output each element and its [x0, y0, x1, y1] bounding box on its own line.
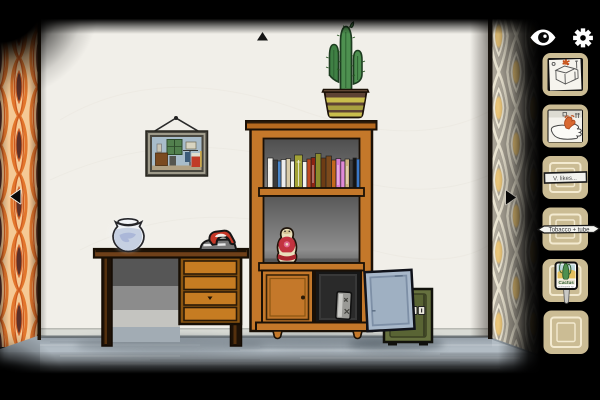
- svg-text:Cactus: Cactus: [559, 280, 575, 285]
- svg-text:Tobacco + tube: Tobacco + tube: [549, 228, 591, 234]
- svg-text:V. likes...: V. likes...: [553, 176, 577, 183]
- svg-text:echinopsis sp.: echinopsis sp.: [558, 285, 575, 289]
